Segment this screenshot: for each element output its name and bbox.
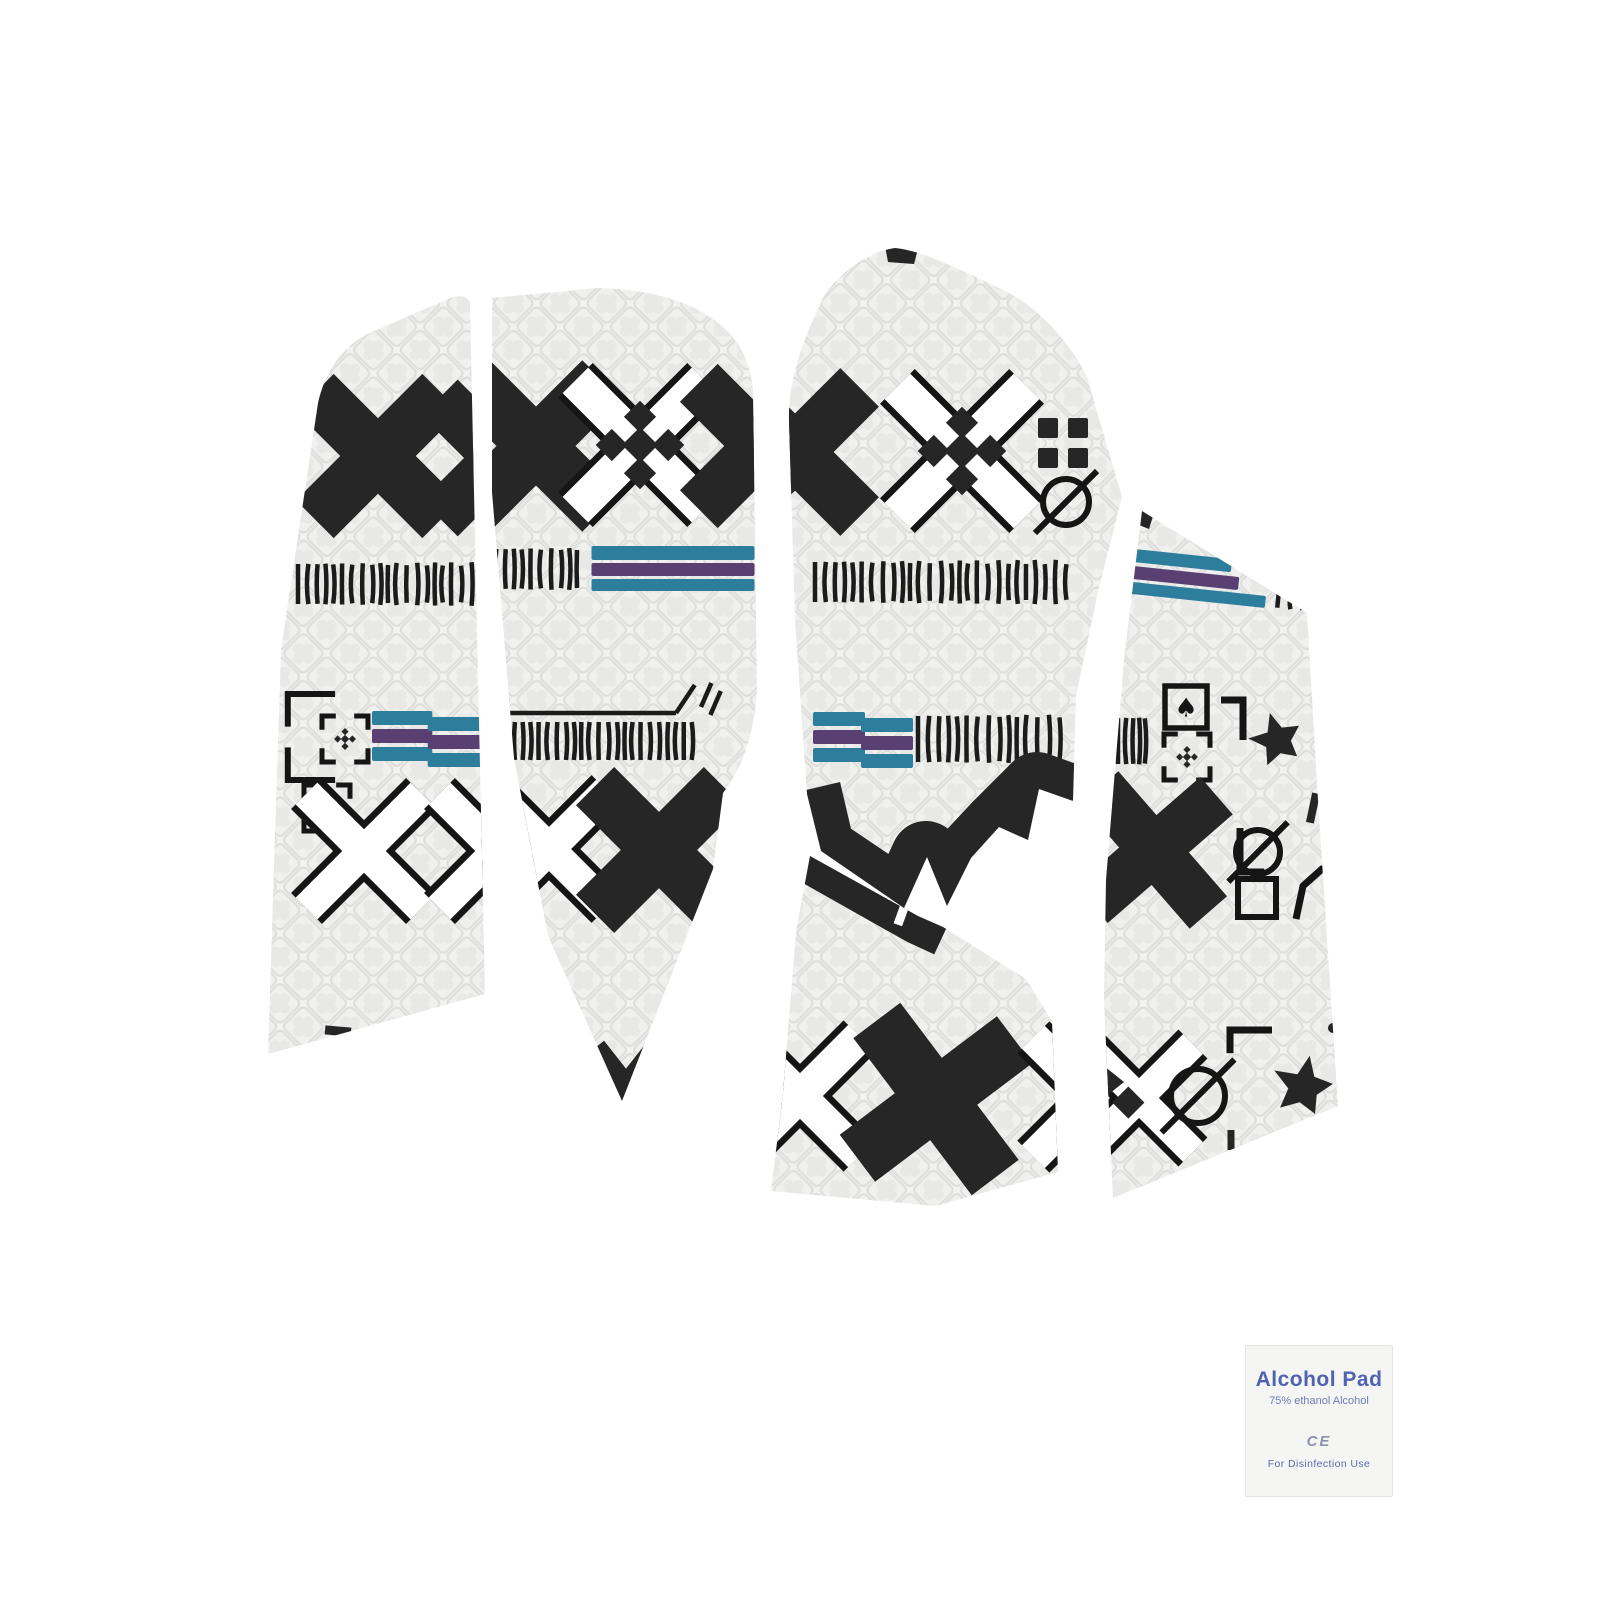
corner-bracket-motif <box>1312 1129 1332 1165</box>
stripe-block-motif <box>813 712 913 768</box>
tick-motif <box>325 1030 351 1032</box>
stripe-lines-motif <box>592 546 755 591</box>
stripe-block-motif <box>372 711 488 767</box>
alcohol-pad-usage: For Disinfection Use <box>1246 1458 1392 1470</box>
alcohol-pad-title: Alcohol Pad <box>1246 1368 1392 1392</box>
product-photo-canvas: ♠ Alcohol Pad 75% ethanol Alcohol CE For… <box>0 0 1600 1600</box>
ce-mark: CE <box>1246 1433 1392 1450</box>
svg-text:♠: ♠ <box>1174 693 1197 723</box>
alcohol-pad-packet: Alcohol Pad 75% ethanol Alcohol CE For D… <box>1245 1345 1393 1497</box>
dot-motif <box>1328 1023 1338 1033</box>
alcohol-pad-subtitle: 75% ethanol Alcohol <box>1246 1395 1392 1407</box>
patch-motif <box>885 246 918 264</box>
